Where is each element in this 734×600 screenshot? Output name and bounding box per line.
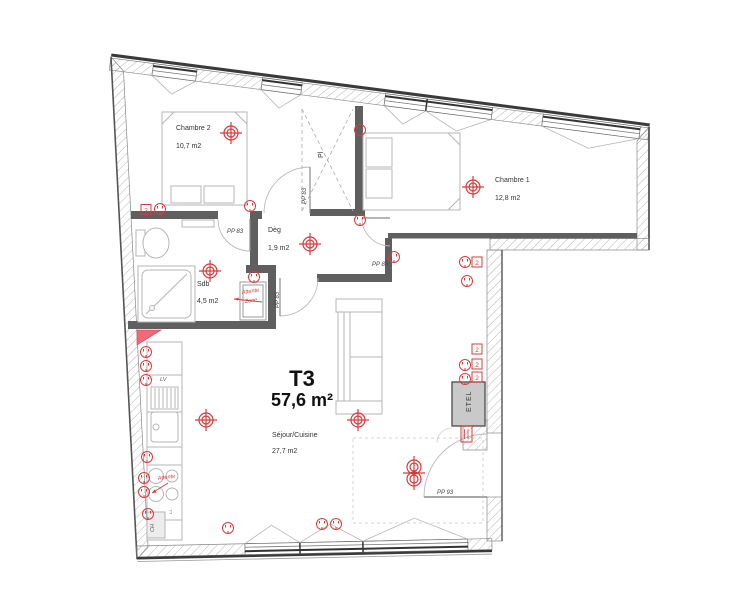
- ceiling-light-kitchen: [195, 409, 217, 431]
- label-chambre2: Chambre 2: [176, 125, 211, 132]
- label-sejour: Séjour/Cuisine: [272, 432, 318, 439]
- etel-access-arc: [437, 428, 452, 443]
- label-deg: Dèg: [268, 227, 281, 234]
- bed-chambre1: [363, 133, 460, 210]
- wall-sdb-east: [250, 219, 258, 267]
- door-sejour: [280, 278, 318, 316]
- area-chambre1: 12,8 m2: [495, 195, 520, 202]
- sofa: [336, 299, 382, 414]
- outlet-symbol: [155, 204, 166, 215]
- wall-deg-south: [317, 274, 392, 282]
- water-heater-label: CH: [150, 524, 156, 532]
- plan-title: T3: [289, 366, 315, 391]
- svg-text:2: 2: [144, 208, 148, 215]
- sink: [151, 387, 178, 442]
- ceiling-light-sdb: [199, 260, 221, 282]
- wall-placard-east: [355, 106, 363, 216]
- area-chambre2: 10,7 m2: [176, 143, 201, 150]
- chambre1-south-wall: [388, 233, 637, 239]
- right-wall-upper: [637, 127, 649, 250]
- outlet-badge: 2: [472, 359, 482, 369]
- label-chambre1: Chambre 1: [495, 177, 530, 184]
- area-deg: 1,9 m2: [268, 245, 290, 252]
- outlet-symbol: [460, 374, 471, 385]
- label-sdb: Sdb: [197, 281, 210, 288]
- step-wall: [388, 233, 649, 250]
- washing-machine-label: LL: [168, 508, 173, 514]
- svg-text:2: 2: [475, 375, 479, 382]
- outlet-symbol: [331, 519, 342, 530]
- door-sdb: [218, 219, 250, 251]
- window: [382, 94, 493, 136]
- outlet-badge: 2: [472, 372, 482, 382]
- outlet-symbol: [245, 201, 256, 212]
- area-sejour: 27,7 m2: [272, 448, 297, 455]
- outlet-symbol: [460, 257, 471, 268]
- svg-text:2: 2: [475, 260, 479, 267]
- outlet-symbol: [462, 276, 473, 287]
- door-label-entrance: PP 93: [437, 490, 454, 496]
- outlet-symbol: [223, 523, 234, 534]
- bottom-windows: [244, 517, 468, 555]
- outlet-symbol: [317, 519, 328, 530]
- wall-niche-top: [246, 265, 276, 273]
- outlet-badge: 2: [472, 344, 482, 354]
- shower: [138, 266, 195, 322]
- ceiling-light-deg: [299, 233, 321, 255]
- placard: [302, 109, 353, 211]
- outlet-symbol: [460, 360, 471, 371]
- outlet-badge: 2: [472, 257, 482, 267]
- door-label-chambre2: PP 83: [302, 187, 308, 204]
- plan-total-area: 57,6 m²: [271, 390, 333, 410]
- window: [150, 64, 197, 97]
- radiator: [182, 220, 214, 227]
- label-placard: Pl: [318, 151, 325, 158]
- outlet-symbol: [249, 272, 260, 283]
- ceiling-light-entrance-double: [403, 456, 425, 490]
- outlet-symbol: [355, 215, 366, 226]
- door-label-sejour: PP 83: [275, 291, 281, 308]
- door-label-chambre1: PP 83: [372, 262, 389, 268]
- window: [259, 78, 302, 111]
- door-label-sdb: PP 83: [227, 229, 244, 235]
- svg-text:2: 2: [475, 347, 479, 354]
- etel-label: ETEL: [466, 390, 473, 412]
- svg-text:2: 2: [475, 362, 479, 369]
- wall-chambre2-south-stub: [250, 211, 262, 219]
- floor-plan: 2 2 2 2 2 Chambre 2 10,7 m2 Chambre 1 12…: [0, 0, 734, 600]
- floor-plan-page: 2 2 2 2 2 Chambre 2 10,7 m2 Chambre 1 12…: [0, 0, 734, 600]
- toilet: [136, 228, 169, 258]
- ceiling-light-chambre1: [462, 176, 484, 198]
- area-sdb: 4,5 m2: [197, 298, 219, 305]
- window: [540, 114, 641, 154]
